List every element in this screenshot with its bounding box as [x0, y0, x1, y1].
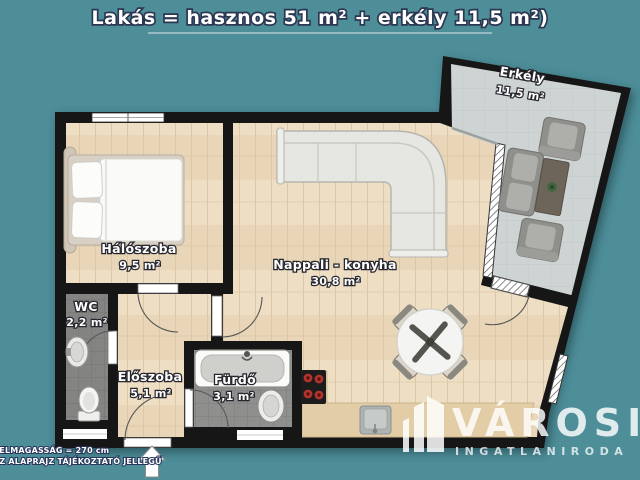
bath-sink [258, 390, 284, 422]
floor-hall-ext [186, 294, 212, 341]
logo-subtitle: INGATLANIRODA [455, 445, 628, 458]
wc-area: 2,2 m² [66, 316, 107, 329]
cooktop [301, 370, 326, 404]
wc-label: WC [74, 299, 98, 314]
hall-label: Előszoba [118, 369, 183, 384]
bedroom-window [92, 113, 164, 122]
footnote-disclaimer: AZ ALAPRAJZ TÁJÉKOZTATÓ JELLEGŰ [0, 455, 162, 466]
wc-sink [66, 337, 88, 367]
bath-window [237, 430, 283, 440]
balcony-armchair-top [538, 117, 586, 162]
living-label: Nappali - konyha [273, 257, 396, 272]
bed [64, 147, 184, 253]
logo-name: VÁROSI [452, 401, 640, 445]
toilet [78, 387, 100, 421]
bath-label: Fürdő [214, 372, 256, 387]
balcony-armchair-bottom [516, 218, 564, 263]
living-area: 30,8 m² [311, 275, 360, 288]
page-title: Lakás = hasznos 51 m² + erkély 11,5 m²) [92, 7, 549, 29]
floorplan-canvas: Hálószoba 9,5 m² WC 2,2 m² Előszoba 5,1 … [0, 0, 640, 480]
bedroom-label: Hálószoba [101, 241, 176, 256]
bedroom-area: 9,5 m² [119, 259, 160, 272]
agency-logo: VÁROSI INGATLANIRODA [403, 396, 640, 458]
footnote-ceiling-height: BELMAGASSÁG = 270 cm [0, 444, 109, 455]
floorplan-image: Hálószoba 9,5 m² WC 2,2 m² Előszoba 5,1 … [0, 0, 640, 480]
floor-hall [118, 294, 186, 437]
wc-window [63, 429, 107, 439]
hall-area: 5,1 m² [130, 387, 171, 400]
bath-area: 3,1 m² [213, 390, 254, 403]
kitchen-sink [360, 406, 391, 434]
